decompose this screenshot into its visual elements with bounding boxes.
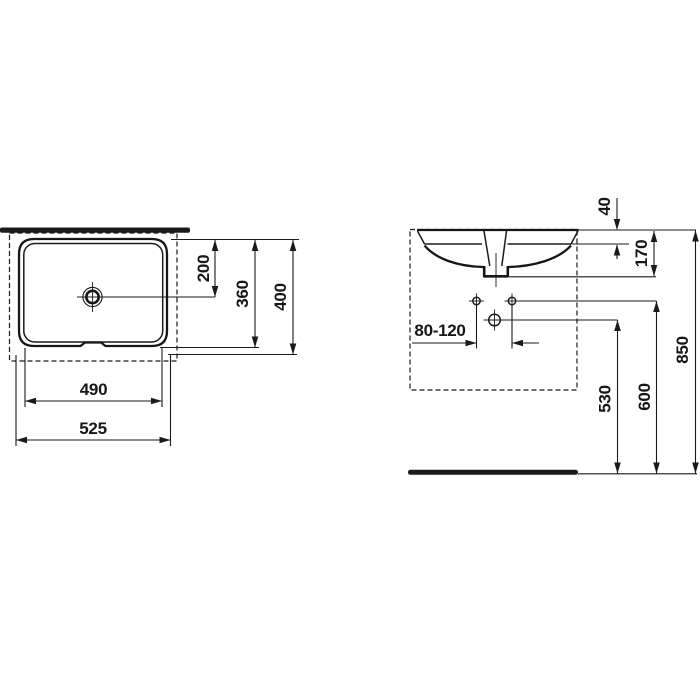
overflow-column-left xyxy=(484,231,490,266)
dim-360: 360 xyxy=(233,240,258,348)
basin-outer-outline xyxy=(19,239,167,346)
dim-label-170: 170 xyxy=(632,240,651,267)
dim-label-400: 400 xyxy=(271,283,290,310)
dim-label-530: 530 xyxy=(596,385,615,412)
dim-600: 600 xyxy=(635,301,660,474)
dim-40: 40 xyxy=(595,197,620,259)
bowl-curve-right xyxy=(509,246,572,268)
basin-section xyxy=(417,230,579,287)
dim-label-360: 360 xyxy=(233,280,252,307)
dim-label-850: 850 xyxy=(673,336,692,363)
rim-left-slant xyxy=(418,231,425,244)
plan-view: 200 360 400 490 525 xyxy=(0,228,299,447)
dim-525: 525 xyxy=(16,419,171,443)
dim-490: 490 xyxy=(25,380,162,404)
dim-200: 200 xyxy=(194,240,218,298)
overflow-column-right xyxy=(502,231,507,266)
drain-hole-symbol xyxy=(484,310,506,331)
technical-drawing-page: 200 360 400 490 525 xyxy=(0,0,700,700)
front-view: 40 170 xyxy=(408,197,699,474)
dim-400: 400 xyxy=(271,240,296,355)
dim-170: 170 xyxy=(632,231,657,276)
dim-850: 850 xyxy=(673,231,699,474)
dim-label-80-120: 80-120 xyxy=(414,321,465,340)
drain-symbol xyxy=(77,282,215,312)
basin-inner-rim xyxy=(24,244,163,343)
dim-label-600: 600 xyxy=(635,383,654,410)
dim-530: 530 xyxy=(596,320,621,474)
dim-label-525: 525 xyxy=(79,419,106,438)
basin-installation-drawing: 200 360 400 490 525 xyxy=(0,0,700,700)
dim-label-40: 40 xyxy=(595,197,614,215)
floor-line xyxy=(408,470,578,475)
dim-label-200: 200 xyxy=(194,255,213,282)
dim-80-120: 80-120 xyxy=(412,321,539,346)
bowl-curve-left xyxy=(425,246,484,268)
wall-line xyxy=(0,228,190,233)
dim-label-490: 490 xyxy=(80,380,107,399)
